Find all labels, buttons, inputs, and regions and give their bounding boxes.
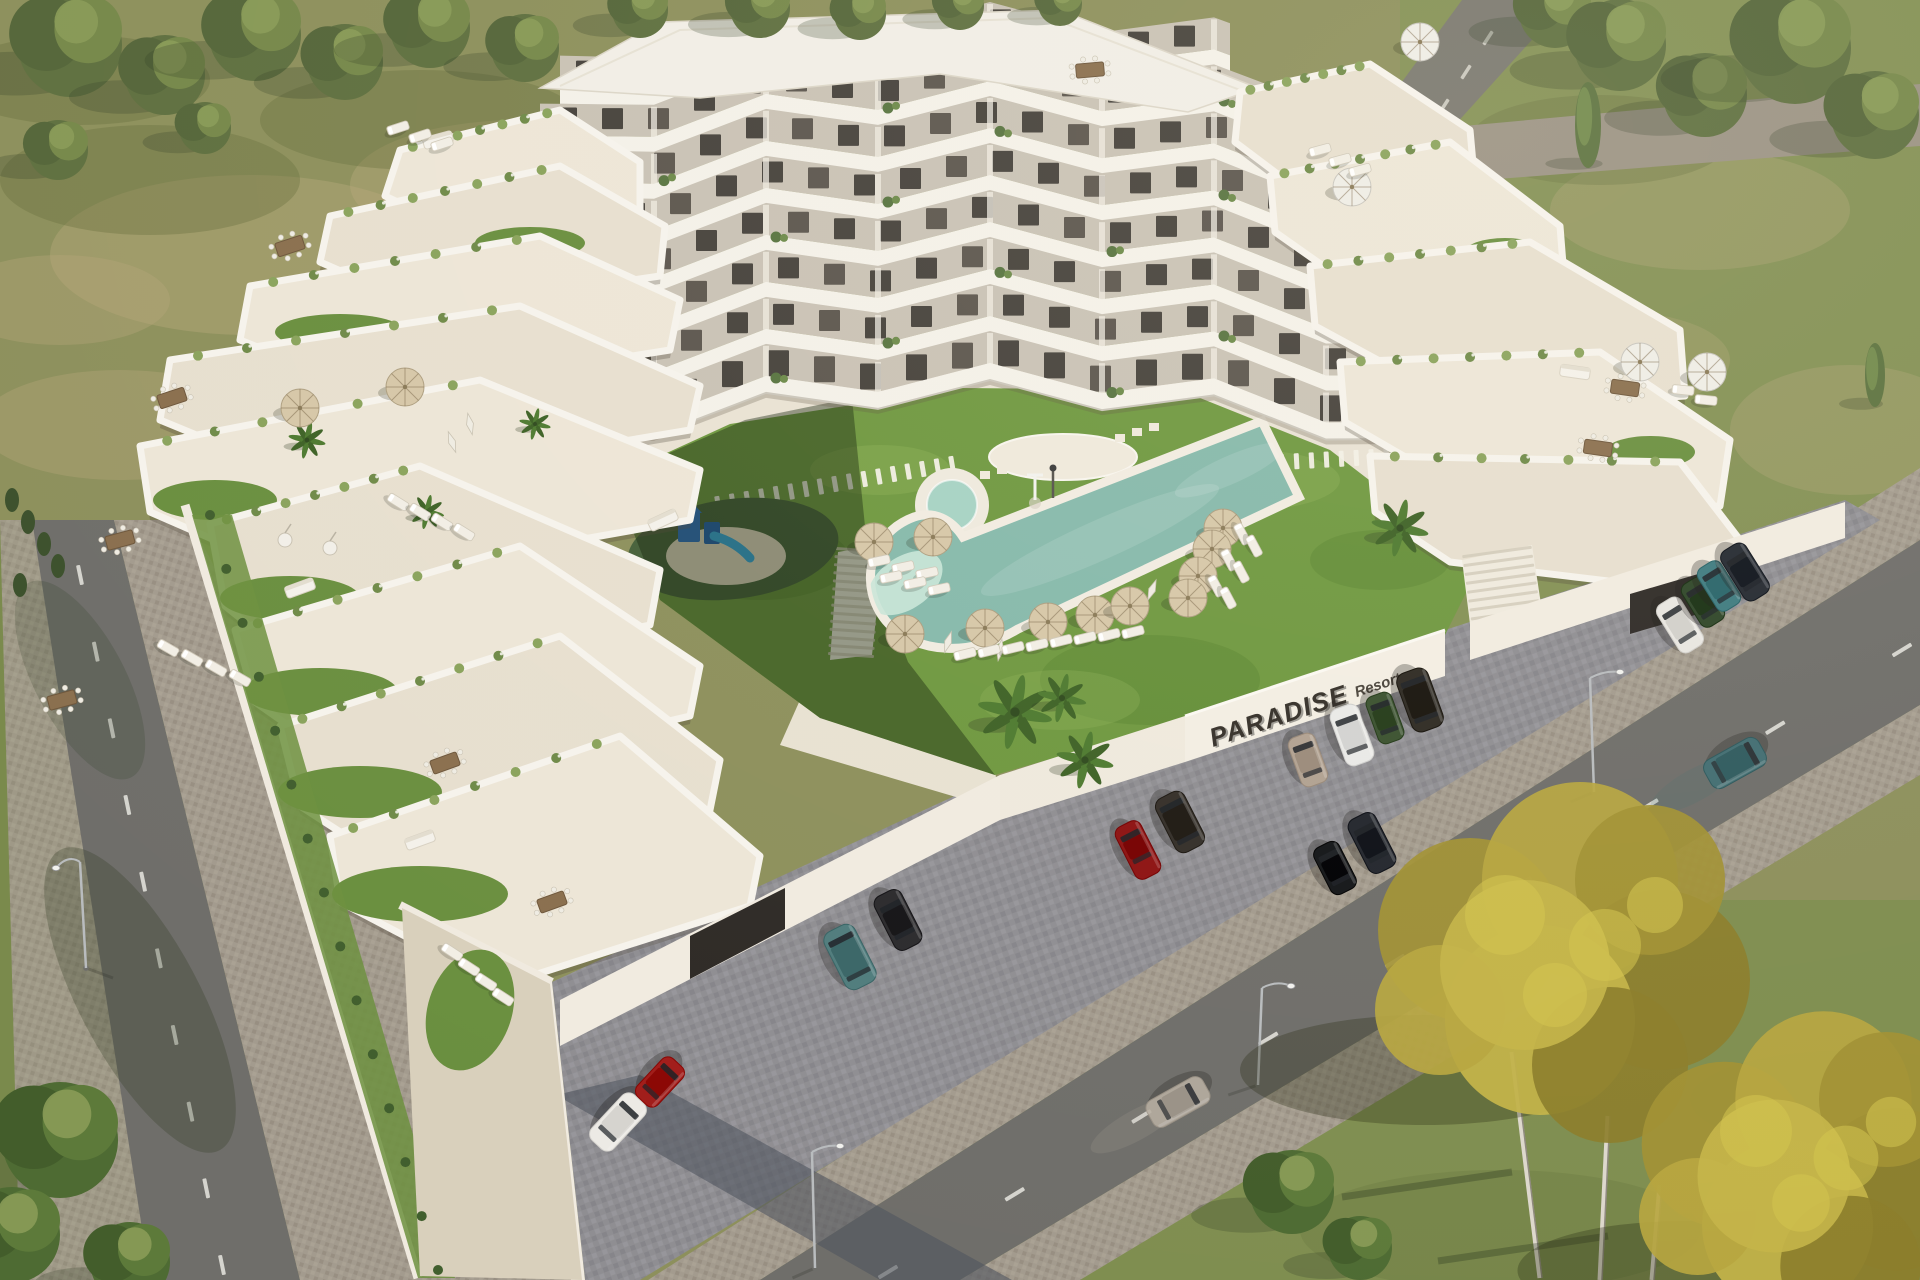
- sunlight-grade: [0, 0, 1920, 1280]
- aerial-render: PARADISE PARADISE Resort: [0, 0, 1920, 1280]
- aerial-render-stage: PARADISE PARADISE Resort: [0, 0, 1920, 1280]
